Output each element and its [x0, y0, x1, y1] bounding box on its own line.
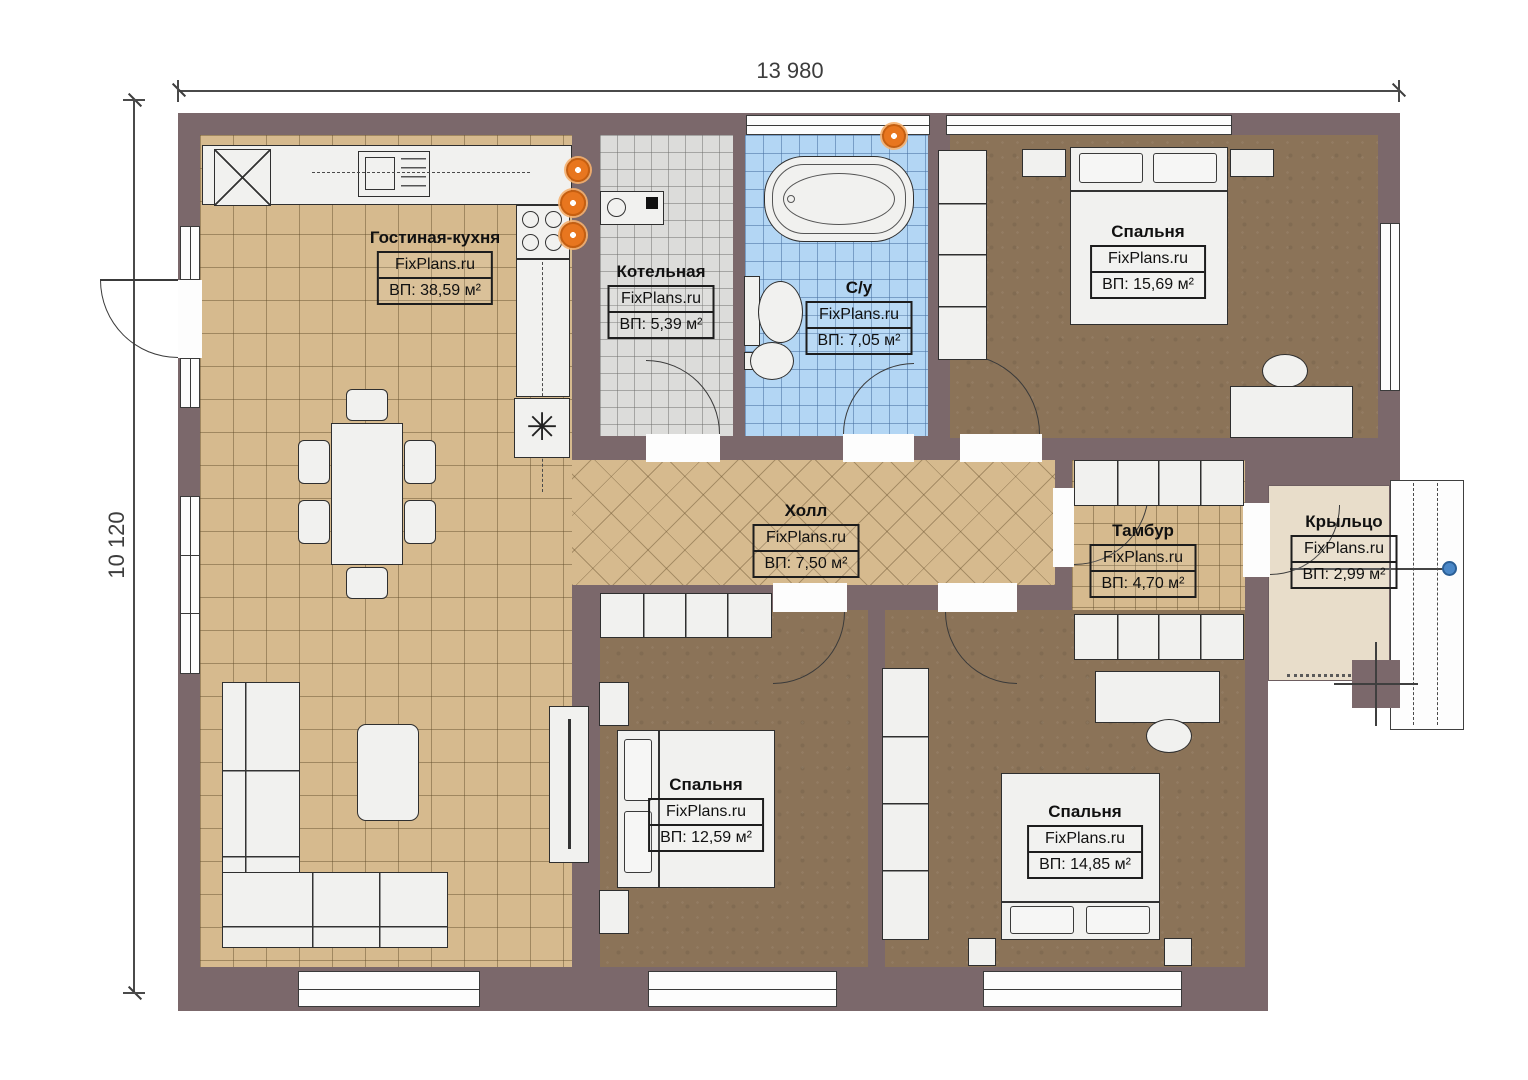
watermark: FixPlans.ru	[755, 526, 858, 552]
room-label-living-kitchen: Гостиная-кухня FixPlans.ru ВП: 38,59 м²	[370, 228, 500, 305]
water-heater-symbol: ✳	[514, 398, 570, 458]
watermark: FixPlans.ru	[379, 253, 491, 279]
nightstand	[599, 890, 629, 934]
watermark: FixPlans.ru	[1029, 827, 1141, 853]
window-living-bottom	[298, 971, 480, 1007]
tv-screen	[568, 719, 571, 849]
upper-cabinet-dashed-line	[312, 172, 530, 173]
height-dimension-label: 10 120	[104, 500, 130, 590]
room-area: ВП: 4,70 м²	[1092, 572, 1195, 596]
room-label-bedroom-top: Спальня FixPlans.ru ВП: 15,69 м²	[1090, 222, 1206, 299]
room-name: Холл	[785, 501, 828, 521]
toilet-bowl	[758, 281, 803, 343]
boiler-unit	[600, 191, 664, 225]
window-left-2	[180, 358, 200, 408]
room-name: Котельная	[616, 262, 705, 282]
room-label-boiler: Котельная FixPlans.ru ВП: 5,39 м²	[608, 262, 715, 339]
room-label-bedroom-middle: Спальня FixPlans.ru ВП: 12,59 м²	[648, 775, 764, 852]
dining-chair	[346, 567, 388, 599]
bathtub-drain	[787, 195, 795, 203]
nightstand	[599, 682, 629, 726]
room-name: Спальня	[669, 775, 742, 795]
wall-right-lower	[1245, 653, 1268, 1011]
column-axis-horizontal	[1334, 683, 1418, 685]
tv-stand	[549, 706, 589, 863]
window-bedroom-right-bottom	[983, 971, 1182, 1007]
kitchen-corner-cabinet	[214, 149, 271, 206]
door-opening-bedroom-right	[938, 583, 1017, 612]
bathtub-basin	[783, 173, 895, 225]
dining-chair	[404, 500, 436, 544]
room-label-porch: Крыльцо FixPlans.ru ВП: 2,99 м²	[1291, 512, 1398, 589]
room-area: ВП: 12,59 м²	[650, 826, 762, 850]
entry-point-marker	[1442, 561, 1457, 576]
door-opening-porch	[1243, 503, 1270, 577]
dining-table	[331, 423, 403, 565]
radiator-marker	[566, 158, 590, 182]
coffee-table	[357, 724, 419, 821]
room-area: ВП: 15,69 м²	[1092, 273, 1204, 297]
kitchen-cabinet-column	[516, 259, 570, 397]
room-name: С/у	[846, 278, 872, 298]
door-opening-bathroom	[843, 434, 914, 462]
kitchen-sink	[358, 151, 430, 197]
radiator-marker	[560, 222, 586, 248]
door-arc-terrace	[100, 280, 178, 358]
boiler-panel	[646, 197, 658, 209]
bathroom-sink	[750, 342, 794, 380]
watermark: FixPlans.ru	[1092, 546, 1195, 572]
radiator-marker	[560, 190, 586, 216]
nightstand	[1164, 938, 1192, 966]
watermark: FixPlans.ru	[808, 303, 911, 329]
width-dimension-label: 13 980	[700, 58, 880, 84]
room-area: ВП: 7,05 м²	[808, 329, 911, 353]
room-name: Тамбур	[1112, 521, 1174, 541]
sink-drainer	[401, 158, 426, 190]
room-label-bedroom-right: Спальня FixPlans.ru ВП: 14,85 м²	[1027, 802, 1143, 879]
door-opening-vestibule	[1053, 488, 1074, 567]
boiler-dial	[607, 198, 626, 217]
bathtub	[764, 156, 914, 242]
room-label-hall: Холл FixPlans.ru ВП: 7,50 м²	[753, 501, 860, 578]
sofa-horizontal-section	[222, 872, 448, 948]
door-leaf-terrace	[100, 279, 178, 281]
room-area: ВП: 2,99 м²	[1293, 563, 1396, 587]
sink-basin	[365, 157, 395, 190]
desk-chair	[1146, 719, 1192, 753]
door-opening-terrace	[178, 280, 202, 358]
top-dimension-line	[178, 90, 1400, 92]
vestibule-closet	[1074, 460, 1244, 506]
wardrobe	[882, 668, 929, 940]
vestibule-closet	[1074, 614, 1244, 660]
watermark: FixPlans.ru	[650, 800, 762, 826]
dimension-extension	[123, 99, 145, 101]
wardrobe	[600, 593, 772, 638]
room-area: ВП: 14,85 м²	[1029, 853, 1141, 877]
room-name: Спальня	[1111, 222, 1184, 242]
dimension-extension	[1398, 80, 1400, 102]
dining-chair	[346, 389, 388, 421]
desk	[1095, 671, 1220, 723]
room-label-bathroom: С/у FixPlans.ru ВП: 7,05 м²	[806, 278, 913, 355]
watermark: FixPlans.ru	[610, 287, 713, 313]
dining-chair	[298, 440, 330, 484]
nightstand	[1230, 149, 1274, 177]
door-opening-bedroom-middle	[773, 583, 847, 612]
dimension-extension	[123, 992, 145, 994]
room-area: ВП: 38,59 м²	[379, 279, 491, 303]
room-label-vestibule: Тамбур FixPlans.ru ВП: 4,70 м²	[1090, 521, 1197, 598]
window-bedroom-middle-bottom	[648, 971, 837, 1007]
room-name: Гостиная-кухня	[370, 228, 500, 248]
wall-above-porch	[1268, 460, 1400, 485]
room-name: Крыльцо	[1305, 512, 1382, 532]
desk-chair	[1262, 354, 1308, 388]
dimension-extension	[177, 80, 179, 102]
dining-chair	[404, 440, 436, 484]
watermark: FixPlans.ru	[1293, 537, 1396, 563]
dining-chair	[298, 500, 330, 544]
window-bedroom-top	[946, 115, 1232, 135]
door-opening-boiler	[646, 434, 720, 462]
nightstand	[1022, 149, 1066, 177]
desk	[1230, 386, 1353, 438]
floor-plan-canvas: 13 980 10 120	[0, 0, 1528, 1080]
window-left-3	[180, 496, 200, 674]
room-area: ВП: 5,39 м²	[610, 313, 713, 337]
room-area: ВП: 7,50 м²	[755, 552, 858, 576]
radiator-marker	[882, 124, 906, 148]
left-dimension-line	[133, 100, 135, 993]
window-left-1	[180, 226, 200, 280]
porch-stairs	[1390, 480, 1464, 730]
wardrobe	[938, 150, 987, 360]
watermark: FixPlans.ru	[1092, 247, 1204, 273]
nightstand	[968, 938, 996, 966]
door-opening-bedroom-top	[960, 434, 1042, 462]
room-name: Спальня	[1048, 802, 1121, 822]
window-right	[1380, 223, 1400, 391]
